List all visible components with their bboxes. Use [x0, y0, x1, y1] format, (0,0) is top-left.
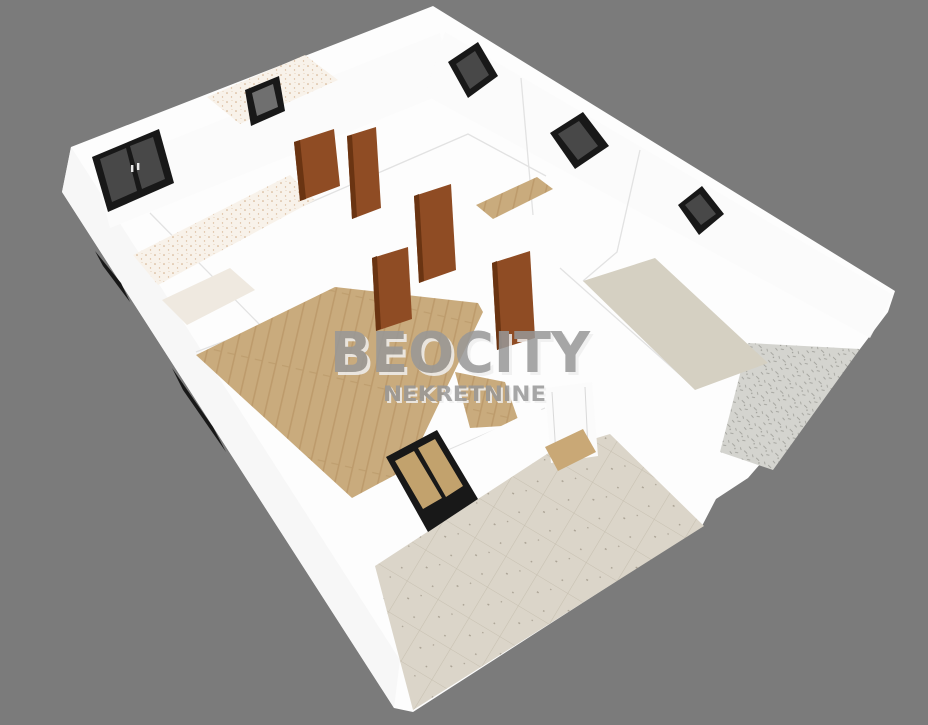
floor-plan-3d-render: BEOCITY BEOCITY NEKRETNINE NEKRETNINE — [0, 0, 928, 725]
watermark-line1: BEOCITY — [330, 321, 591, 386]
window-handle — [137, 163, 139, 170]
window-handle — [131, 165, 133, 172]
watermark-line2: NEKRETNINE — [383, 382, 546, 406]
floor-plan-image: BEOCITY BEOCITY NEKRETNINE NEKRETNINE — [0, 0, 928, 725]
